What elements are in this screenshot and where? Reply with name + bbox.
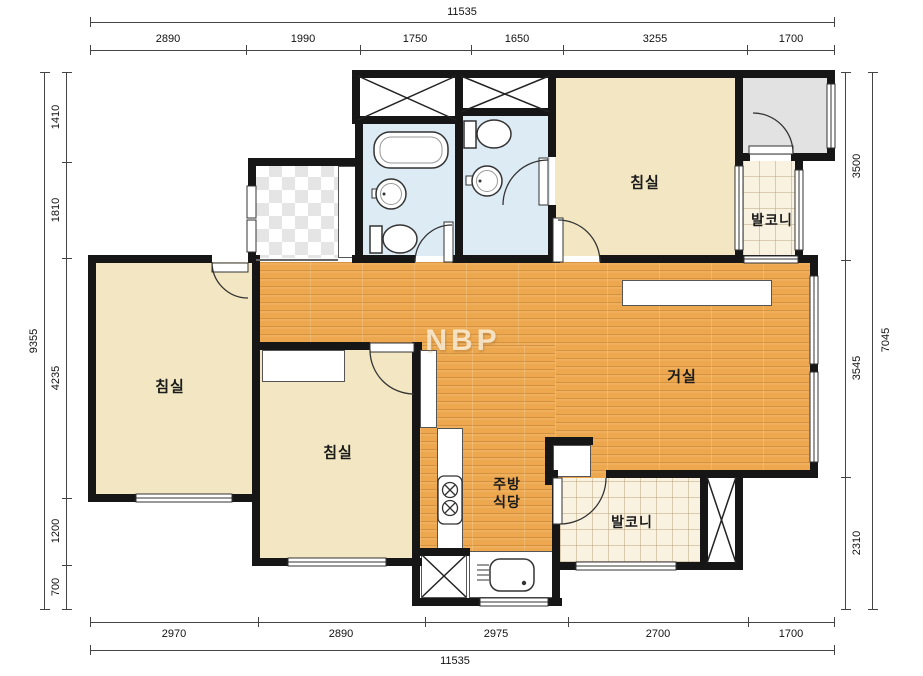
dim-bottom-5: 1700 — [779, 628, 803, 640]
dim-bottom-total: 11535 — [440, 655, 470, 667]
dim-left-3: 4235 — [50, 366, 62, 390]
dim-right-3: 2310 — [851, 531, 863, 555]
closet-1 — [358, 76, 456, 120]
kitchen-counter — [437, 428, 463, 550]
room-bathroom-2-floor — [460, 116, 550, 256]
utility-nook — [553, 445, 591, 477]
room-entrance-floor — [256, 164, 338, 258]
duct-shaft-balcony — [706, 476, 737, 564]
dim-top-4: 1650 — [505, 33, 529, 45]
room-utility-floor — [741, 76, 829, 155]
label-bedroom-left: 침실 — [155, 376, 185, 397]
dim-left-2: 1810 — [50, 198, 62, 222]
dim-left-4: 1200 — [50, 519, 62, 543]
dim-right-1: 3500 — [851, 154, 863, 178]
duct-shaft-kitchen — [421, 554, 467, 598]
dim-top-3: 1750 — [403, 33, 427, 45]
label-balcony-bottom: 발코니 — [611, 512, 653, 532]
watermark-logo: NBP — [425, 324, 500, 358]
dim-left-1: 1410 — [50, 105, 62, 129]
room-balcony-top-floor — [743, 161, 797, 257]
dim-bottom-3: 2975 — [484, 628, 508, 640]
dim-top-6: 1700 — [779, 33, 803, 45]
dim-bottom-4: 2700 — [646, 628, 670, 640]
label-kitchen-line1: 주방 — [493, 474, 521, 494]
dim-top-2: 1990 — [291, 33, 315, 45]
door-entrance — [247, 186, 256, 252]
label-living: 거실 — [667, 366, 697, 387]
dim-right-2: 3545 — [851, 356, 863, 380]
bedroom-bottom-closet — [262, 350, 345, 382]
label-bedroom-master: 침실 — [630, 172, 660, 193]
dim-top-5: 3255 — [643, 33, 667, 45]
label-balcony-top: 발코니 — [751, 210, 793, 230]
closet-2 — [461, 76, 549, 112]
label-bedroom-bottom: 침실 — [323, 442, 353, 463]
dim-top-1: 2890 — [156, 33, 180, 45]
room-hallway-floor — [258, 262, 558, 346]
dim-left-total: 9355 — [28, 329, 40, 353]
room-bedroom-master-floor — [555, 78, 737, 256]
dim-top-total: 11535 — [447, 6, 477, 18]
dim-bottom-1: 2970 — [162, 628, 186, 640]
kitchen-cabinet — [420, 350, 437, 428]
dim-right-total: 7045 — [880, 328, 892, 352]
label-kitchen-line2: 식당 — [493, 492, 521, 512]
room-bathroom-1-floor — [360, 124, 456, 256]
dim-bottom-2: 2890 — [329, 628, 353, 640]
living-storage — [622, 280, 772, 306]
floor-plan: 침실 침실 침실 거실 발코니 발코니 주방 식당 NBP 11535 2890… — [0, 0, 923, 676]
dim-left-5: 700 — [50, 578, 62, 596]
kitchen-sink-counter — [469, 551, 553, 598]
